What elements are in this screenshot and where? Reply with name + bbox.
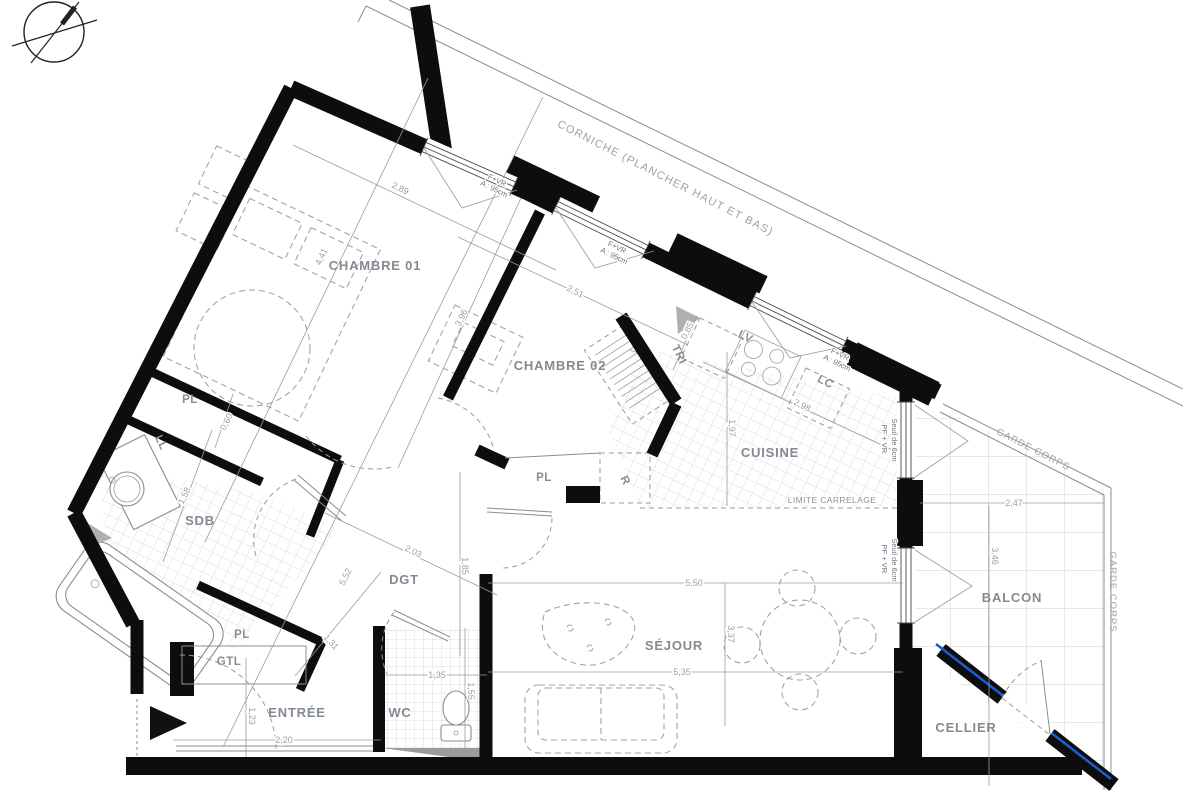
railing-label-2: GARDE CORPS	[1107, 551, 1118, 632]
compass-icon	[12, 2, 97, 63]
room-label-chambre01: CHAMBRE 01	[329, 258, 422, 273]
closet-label-gtl: GTL	[217, 656, 242, 668]
walls	[74, 6, 1114, 785]
room-label-balcon: BALCON	[982, 590, 1042, 605]
dim-197: 1,97	[727, 419, 737, 437]
tile-limit-label: LIMITE CARRELAGE	[788, 495, 877, 505]
room-label-cellier: CELLIER	[935, 720, 996, 735]
dim-203: 2,03	[403, 543, 423, 560]
pl-sliding-door	[487, 508, 552, 568]
room-label-sdb: SDB	[185, 513, 215, 528]
floor-plan: CHAMBRE 01 CHAMBRE 02 CUISINE SDB DGT SÉ…	[0, 0, 1183, 797]
room-label-cuisine: CUISINE	[741, 445, 799, 460]
dim-155: 1,55	[466, 682, 476, 700]
dim-535: 5,35	[673, 667, 691, 677]
dim-441: 4,41	[313, 247, 330, 267]
dim-220: 2,20	[275, 735, 293, 745]
dim-251: 2,51	[565, 283, 585, 300]
dim-131: 1,31	[322, 632, 341, 652]
coffee-table	[542, 603, 634, 665]
chambre02-door-arc	[438, 398, 494, 450]
dim-550: 5,50	[685, 578, 703, 588]
door-window-note-2: PF + VR Seuil de 6cm	[880, 538, 899, 581]
dim-185: 1,85	[460, 557, 470, 575]
dining-table	[724, 570, 876, 710]
bed	[163, 185, 380, 421]
sofa	[525, 685, 677, 753]
room-label-dgt: DGT	[389, 572, 419, 587]
room-label-sejour: SÉJOUR	[645, 638, 703, 653]
door-window-note-1: PF + VR Seuil de 6cm	[880, 418, 899, 461]
entrance-arrow-icon	[150, 706, 187, 740]
dim-135: 1,35	[428, 670, 446, 680]
closet-label-pl-1: PL	[182, 394, 198, 406]
dim-247: 2,47	[1005, 498, 1023, 508]
rug	[194, 290, 310, 406]
room-label-wc: WC	[388, 705, 411, 720]
label-r: R	[617, 474, 632, 487]
dim-123: 1,23	[247, 707, 257, 725]
site-outline	[358, 0, 1183, 406]
room-label-entree: ENTRÉE	[268, 705, 326, 720]
dim-346: 3,46	[990, 547, 1000, 565]
room-label-chambre02: CHAMBRE 02	[514, 358, 607, 373]
dim-060: 0,60	[218, 412, 235, 432]
closet-label-pl-3: PL	[234, 629, 250, 641]
closet-label-pl-2: PL	[536, 472, 552, 484]
floor-plan-svg: CHAMBRE 01 CHAMBRE 02 CUISINE SDB DGT SÉ…	[0, 0, 1183, 797]
dim-289: 2,89	[390, 180, 410, 197]
dim-552: 5,52	[337, 567, 354, 587]
dim-337: 3,37	[726, 625, 736, 643]
